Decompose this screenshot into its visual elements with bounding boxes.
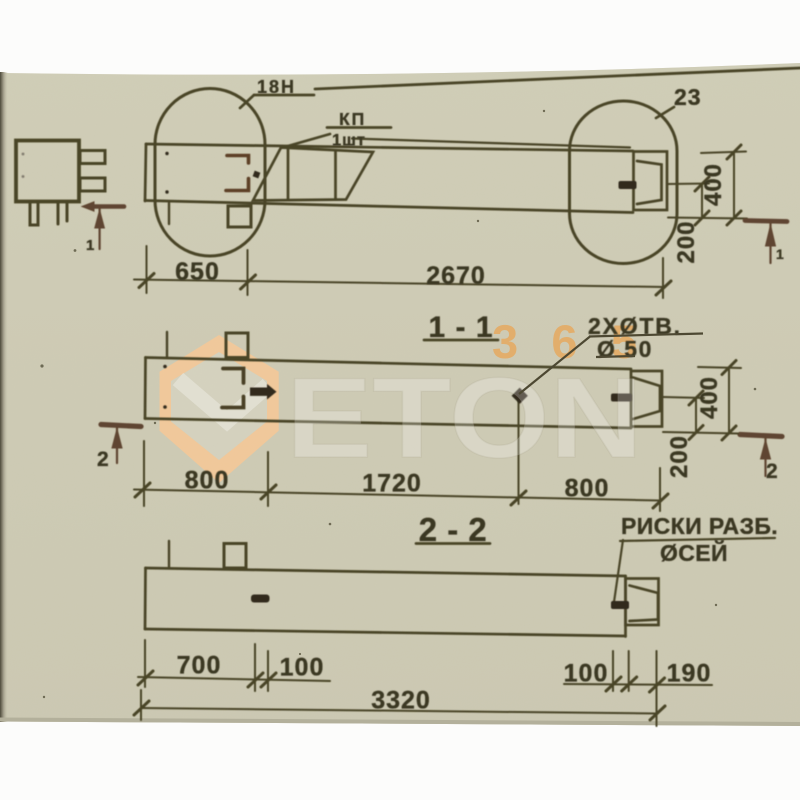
- svg-text:190: 190: [667, 660, 712, 688]
- svg-text:Ø 50: Ø 50: [597, 336, 653, 362]
- svg-text:700: 700: [177, 652, 222, 680]
- svg-text:2: 2: [97, 448, 109, 471]
- svg-text:1: 1: [86, 237, 94, 254]
- svg-text:200: 200: [673, 220, 700, 263]
- svg-text:ETON: ETON: [286, 355, 643, 482]
- svg-text:РИСКИ РАЗБ.: РИСКИ РАЗБ.: [621, 513, 778, 539]
- svg-text:100: 100: [280, 654, 325, 682]
- svg-text:2670: 2670: [426, 262, 486, 290]
- svg-text:800: 800: [185, 467, 230, 495]
- svg-text:1шт: 1шт: [332, 132, 366, 150]
- svg-text:3320: 3320: [371, 687, 431, 715]
- svg-text:2: 2: [766, 460, 778, 483]
- svg-text:1 - 1: 1 - 1: [428, 311, 493, 344]
- svg-text:ØСЕЙ: ØСЕЙ: [660, 539, 728, 566]
- svg-text:1: 1: [776, 246, 784, 262]
- svg-text:100: 100: [564, 660, 609, 688]
- svg-text:23: 23: [674, 84, 702, 110]
- svg-text:400: 400: [696, 376, 723, 419]
- svg-text:КП: КП: [339, 109, 366, 129]
- svg-text:2 - 2: 2 - 2: [419, 511, 488, 548]
- svg-text:650: 650: [175, 258, 220, 286]
- svg-text:200: 200: [666, 435, 693, 478]
- svg-text:18Н: 18Н: [257, 77, 296, 97]
- svg-text:400: 400: [700, 163, 727, 206]
